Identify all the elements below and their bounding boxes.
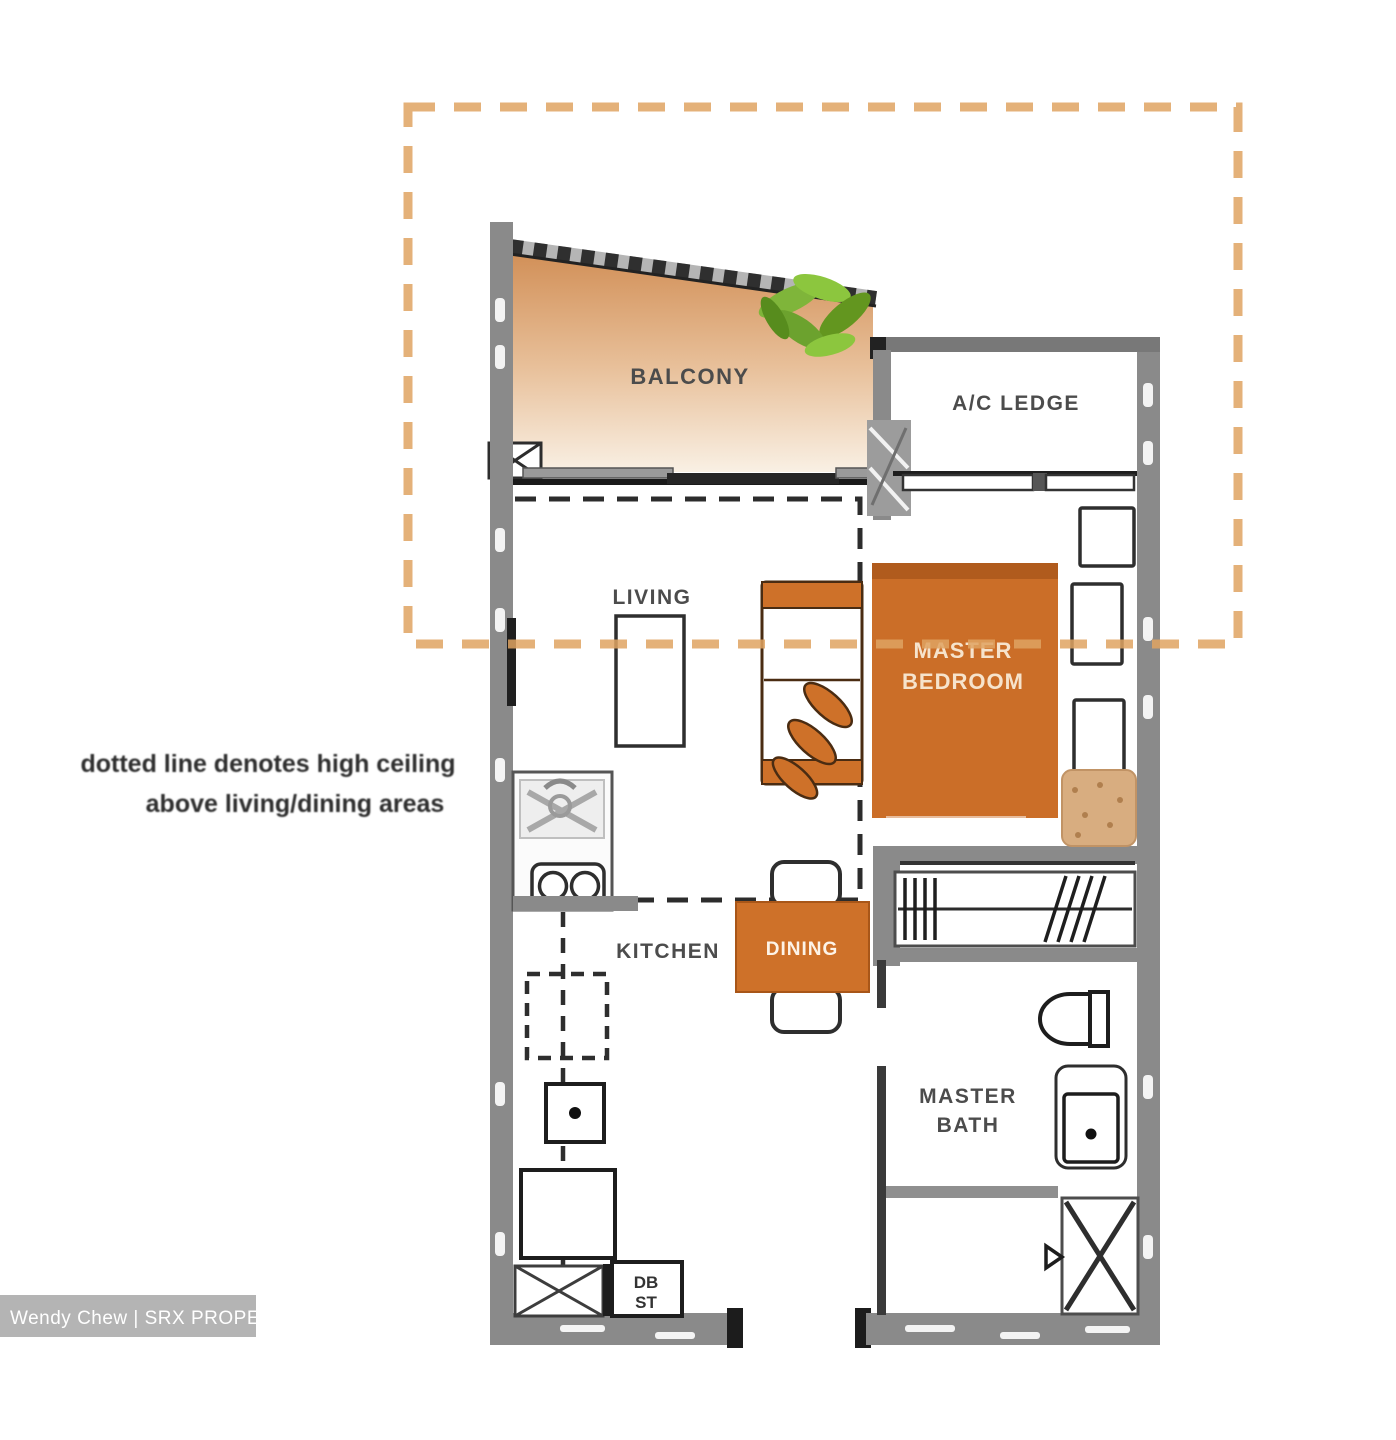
floorplan-page: BALCONY (0, 0, 1396, 1440)
dining-chair-bottom (772, 988, 840, 1032)
kitchen-label: KITCHEN (616, 940, 720, 963)
tv-console (616, 616, 684, 746)
sofa (762, 582, 862, 805)
master-bath-label-1: MASTER (919, 1085, 1017, 1108)
overhead-cabinet-dashed-box (527, 974, 607, 1058)
living-label: LIVING (612, 586, 691, 609)
vanity-basin-icon (1056, 1066, 1126, 1168)
nightstand-1 (1080, 508, 1134, 566)
st-label: ST (635, 1293, 657, 1312)
toilet-icon (1040, 992, 1108, 1046)
wall-cabinet-mark (507, 618, 516, 706)
bed-headboard (872, 563, 1058, 579)
entry-jamb-left (727, 1308, 743, 1348)
nightstand-2 (1072, 584, 1122, 664)
note: dotted line denotes high ceiling above l… (80, 750, 455, 818)
ac-ledge-top-wall (873, 337, 1160, 352)
window-left (903, 475, 1033, 490)
fridge (521, 1170, 615, 1258)
nightstand-3 (1074, 700, 1124, 778)
bath-top-wall (877, 948, 1160, 962)
note-line-2: above living/dining areas (146, 790, 445, 818)
oven (546, 1084, 604, 1142)
bath-door-opening (874, 1008, 888, 1066)
watermark-text: Wendy Chew | SRX PROPERTY (10, 1308, 299, 1329)
hatched-wall-block (867, 420, 911, 516)
floorplan-drawing: BALCONY (0, 0, 1396, 1440)
kitchen-sink (520, 780, 604, 838)
bed-foot-bench (886, 816, 1026, 830)
master-bedroom-label-2: BEDROOM (902, 669, 1024, 694)
wardrobe (895, 872, 1135, 946)
balcony-area: BALCONY (489, 240, 877, 485)
windows (893, 471, 1137, 491)
master-bedroom-area: MASTER BEDROOM (872, 508, 1136, 946)
bedroom-rug (1062, 770, 1136, 846)
ac-ledge-label: A/C LEDGE (952, 392, 1080, 415)
left-outer-wall (490, 222, 513, 1345)
dining-area: DINING (736, 862, 869, 1032)
dining-chair-top (772, 862, 840, 906)
balcony-label: BALCONY (630, 364, 749, 389)
kitchen-low-wall (513, 896, 638, 911)
shower-icon (1062, 1198, 1138, 1314)
bedroom-bottom-wall-line (873, 861, 1135, 865)
dining-label: DINING (766, 939, 839, 960)
floor-trap-icon (1046, 1246, 1062, 1268)
master-bath-area: MASTER BATH (919, 992, 1138, 1314)
note-line-1: dotted line denotes high ceiling (80, 750, 455, 778)
right-outer-wall (1137, 337, 1160, 1345)
db-st-box: DB ST (612, 1262, 682, 1316)
bath-partition-wall (886, 1186, 1058, 1198)
kitchen-area: KITCHEN DB ST (513, 772, 720, 1316)
watermark: Wendy Chew | SRX PROPERTY (0, 1295, 299, 1337)
window-right (1046, 475, 1134, 490)
ac-ledge-area: A/C LEDGE (952, 392, 1080, 415)
db-label: DB (634, 1273, 659, 1292)
shelter-x-box (515, 1266, 603, 1316)
master-bath-label-2: BATH (937, 1114, 1000, 1137)
